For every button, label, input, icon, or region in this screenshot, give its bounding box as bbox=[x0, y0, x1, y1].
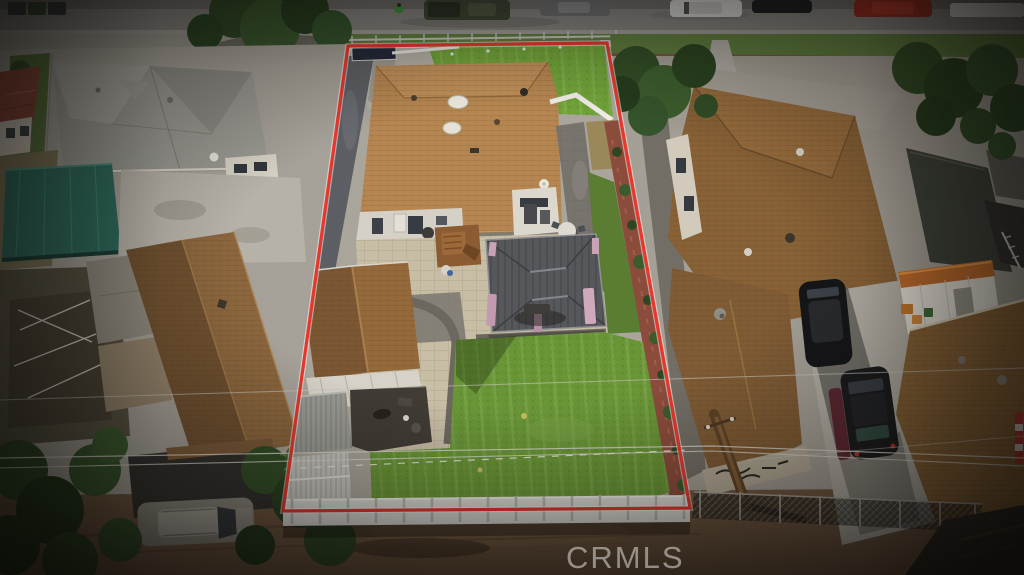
film-grain bbox=[0, 0, 1024, 575]
aerial-photo: CRMLS bbox=[0, 0, 1024, 575]
aerial-photo-canvas bbox=[0, 0, 1024, 575]
